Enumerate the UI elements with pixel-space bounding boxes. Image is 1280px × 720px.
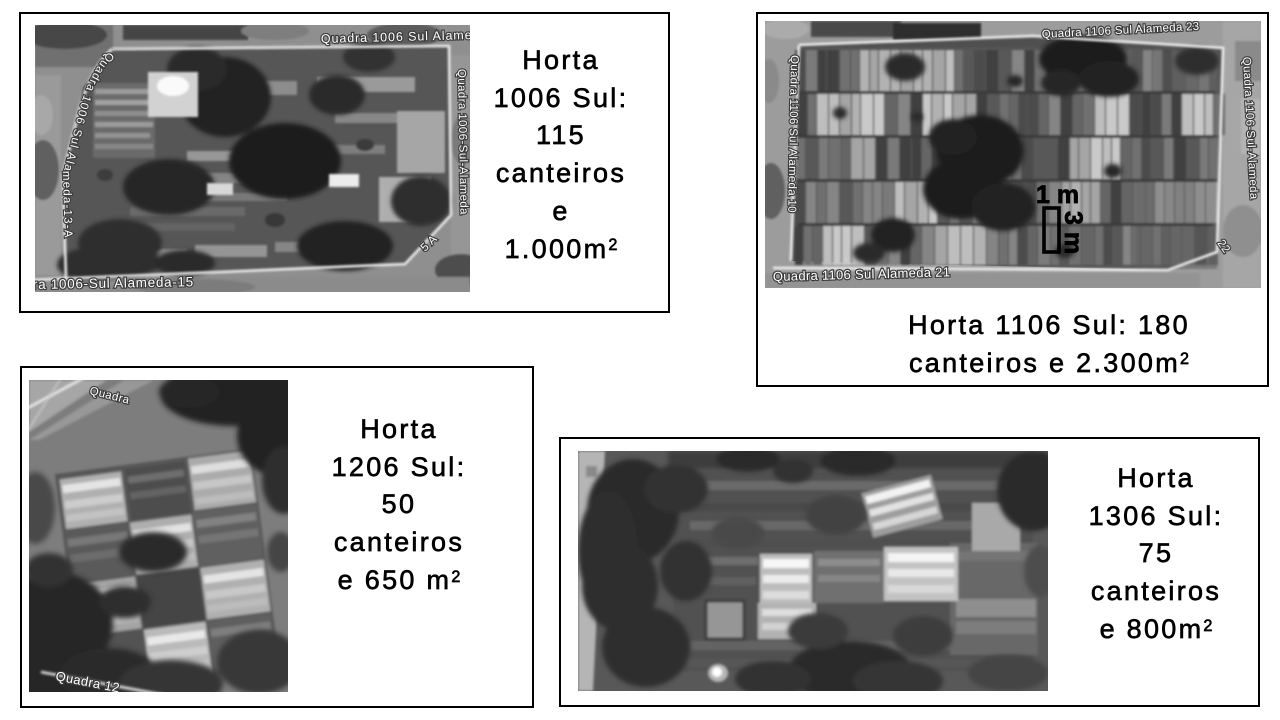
svg-text:3 m: 3 m	[1059, 211, 1087, 254]
svg-text:ra 1006-Sul Alameda-15: ra 1006-Sul Alameda-15	[35, 274, 194, 292]
svg-text:1 m: 1 m	[1036, 181, 1079, 209]
